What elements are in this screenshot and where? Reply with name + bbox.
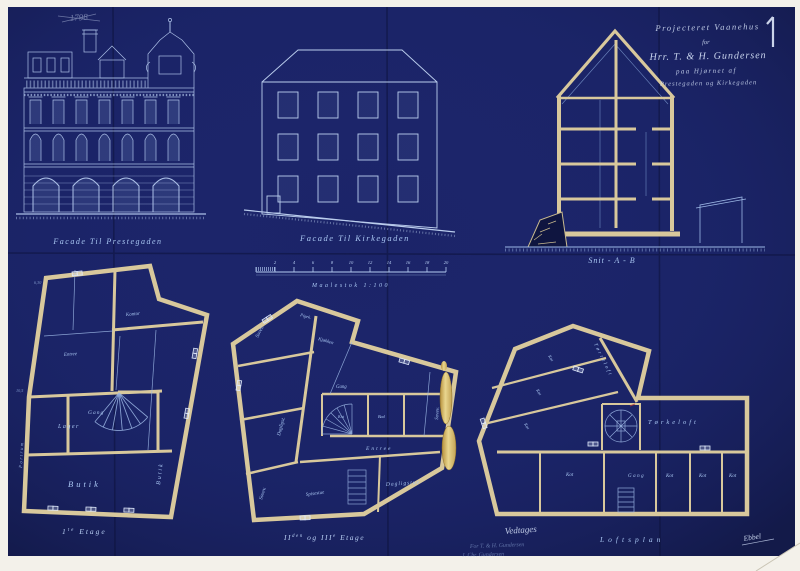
title-line3: Hrr. T. & H. Gundersen [648, 50, 766, 63]
title-line1: Projecteret Vaanehus [654, 21, 759, 33]
section-label: Snit - A - B [588, 256, 635, 265]
room-label-entree: Entree [63, 352, 78, 358]
svg-text:20: 20 [444, 260, 449, 265]
loft-kot-6: Kot [698, 474, 707, 479]
title-line4: paa Hjørnet af [675, 67, 737, 76]
title-line2: for [702, 39, 710, 46]
room-label-bad: Bad [378, 414, 386, 419]
room-label-butik-main: Butik [68, 479, 101, 489]
loft-kot-7: Kot [728, 474, 737, 479]
svg-text:10: 10 [349, 260, 354, 265]
blueprint-scan: Facade Til Prestegaden Facade Til Kirkeg… [0, 0, 800, 571]
room-label-sove3: Sovev. [434, 407, 441, 420]
blueprint-sheet-svg: Facade Til Prestegaden Facade Til Kirkeg… [0, 0, 800, 571]
room-label-entree: Entree [365, 446, 392, 452]
room-label-kot: Kot [337, 414, 345, 419]
room-label-gang: Gang [88, 410, 104, 416]
room-label-lager: Lager [57, 424, 80, 430]
room-label-torkeloft: Tørkeloft [648, 419, 699, 426]
svg-text:16: 16 [406, 260, 411, 265]
plan3-title: Loftsplan [599, 535, 664, 544]
room-label-loft-gang: Gang [628, 474, 645, 479]
svg-text:12: 12 [368, 260, 373, 265]
scale-label: Maalestok 1:100 [311, 283, 390, 289]
svg-text:14: 14 [387, 260, 392, 265]
facade-kirkegaden-label: Facade Til Kirkegaden [299, 233, 410, 243]
loft-kot-5: Kot [665, 474, 674, 479]
loft-kot-4: Kot [565, 473, 574, 478]
room-label-gang: Gang [336, 385, 347, 390]
svg-text:18: 18 [425, 260, 430, 265]
facade-prestegaden-label: Facade Til Prestegaden [52, 237, 162, 246]
